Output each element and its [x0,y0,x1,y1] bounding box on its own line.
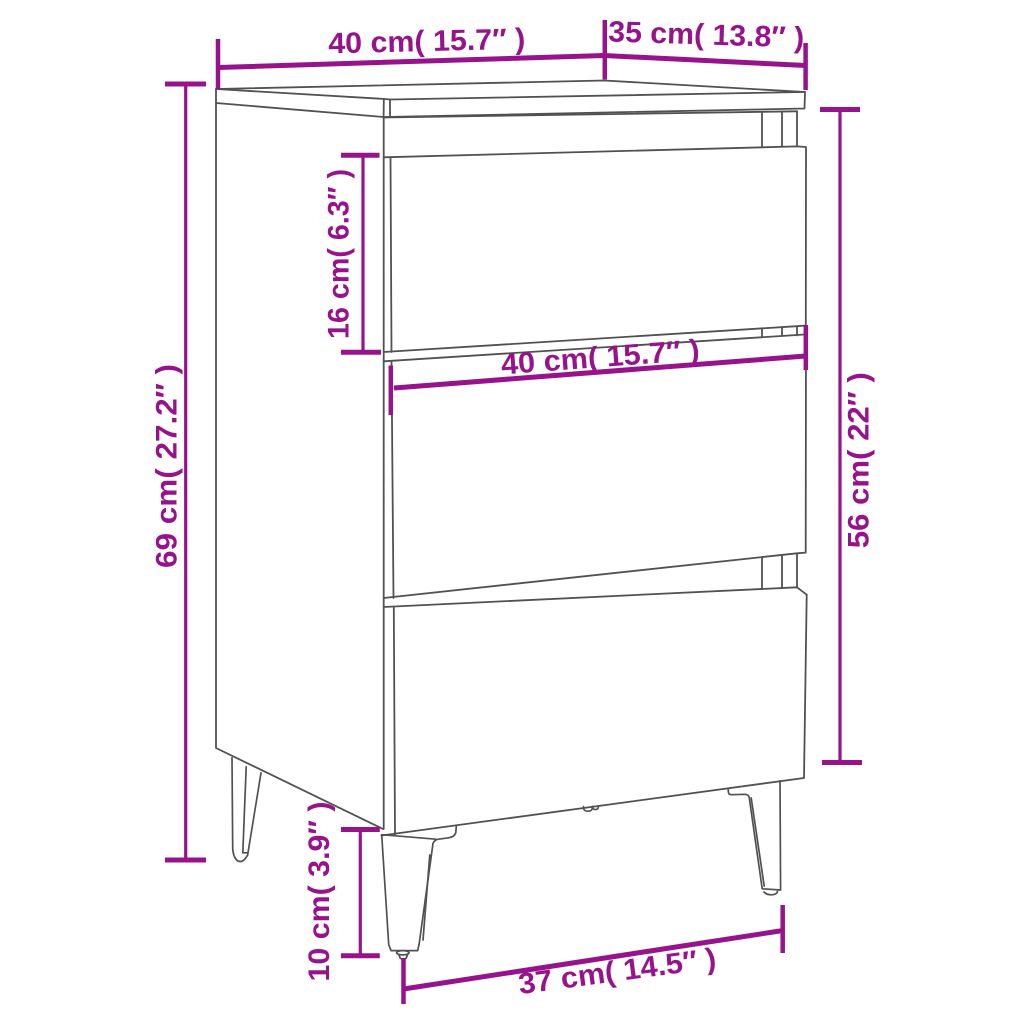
svg-text:40 cm( 15.7″ ): 40 cm( 15.7″ ) [328,23,526,61]
svg-text:16 cm( 6.3″ ): 16 cm( 6.3″ ) [323,169,356,339]
svg-text:35 cm( 13.8″ ): 35 cm( 13.8″ ) [608,15,805,54]
svg-text:56 cm( 22″ ): 56 cm( 22″ ) [842,372,875,548]
svg-text:69 cm( 27.2″ ): 69 cm( 27.2″ ) [151,364,184,568]
svg-text:10 cm( 3.9″ ): 10 cm( 3.9″ ) [303,802,336,982]
